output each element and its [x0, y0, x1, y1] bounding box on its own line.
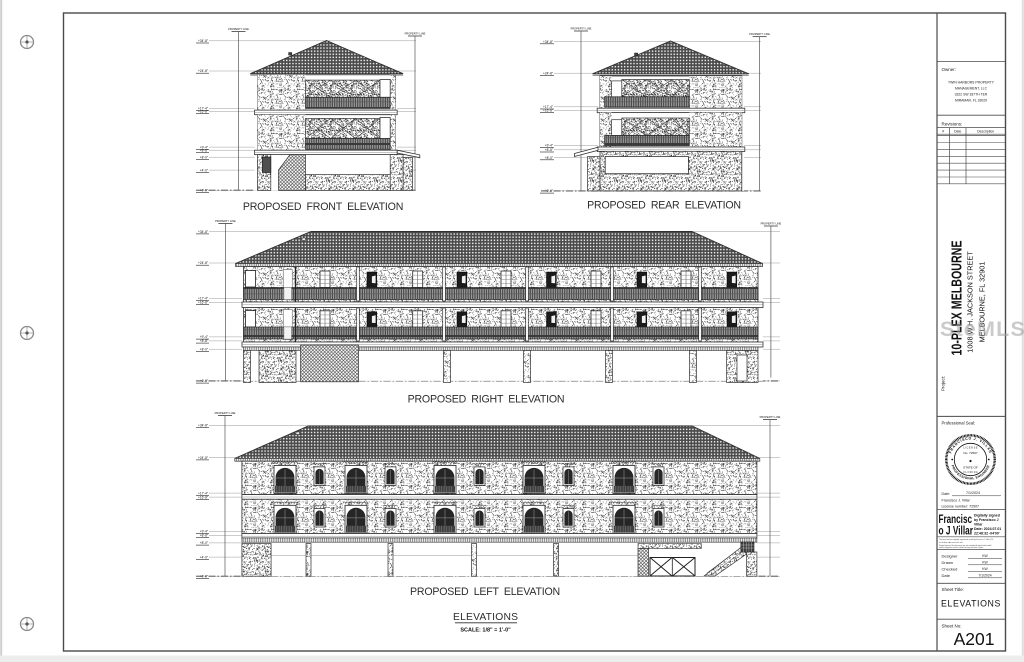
svg-text:Revisions:: Revisions: — [942, 121, 963, 126]
svg-text:PROPOSED LEFT ELEVATION: PROPOSED LEFT ELEVATION — [410, 586, 560, 598]
svg-text:+8'-8": +8'-8" — [200, 339, 208, 343]
svg-text:PROPOSED RIGHT ELEVATION: PROPOSED RIGHT ELEVATION — [408, 394, 565, 406]
svg-text:and the signature must be veri: and the signature must be verified on an… — [939, 546, 984, 549]
svg-text:Owner:: Owner: — [942, 67, 957, 72]
svg-text:KW: KW — [982, 554, 988, 558]
svg-text:+34'-8": +34'-8" — [198, 39, 208, 43]
svg-text:SCALE: 1/8" = 1'-0": SCALE: 1/8" = 1'-0" — [460, 628, 511, 634]
svg-text:L I C E N S E: L I C E N S E — [963, 447, 978, 450]
svg-text:on the date adjacent to the se: on the date adjacent to the seal. — [939, 541, 964, 544]
svg-text:Description: Description — [977, 130, 994, 134]
svg-text:3322 SW 187TH TER: 3322 SW 187TH TER — [955, 93, 988, 97]
svg-text:+24'-8": +24'-8" — [198, 456, 208, 460]
svg-text:Francisco J. Villar: Francisco J. Villar — [942, 499, 971, 503]
svg-text:7/1/2024: 7/1/2024 — [978, 574, 991, 578]
svg-text:+8'-0": +8'-0" — [200, 347, 208, 351]
svg-text:7/1/2024: 7/1/2024 — [966, 491, 980, 495]
svg-text:F L O R I D A: F L O R I D A — [963, 471, 978, 474]
svg-text:Sheet Title:: Sheet Title: — [942, 587, 965, 592]
svg-text:+16'-8": +16'-8" — [198, 301, 208, 305]
svg-text:PROPOSED FRONT ELEVATION: PROPOSED FRONT ELEVATION — [243, 201, 403, 213]
svg-text:22:48:32 -04'00': 22:48:32 -04'00' — [974, 532, 1000, 536]
svg-text:This item has been digitally s: This item has been digitally signed and … — [939, 538, 994, 541]
svg-text:Project:: Project: — [941, 376, 946, 391]
svg-text:+24'-8": +24'-8" — [198, 69, 208, 73]
svg-text:A201: A201 — [954, 629, 995, 649]
svg-text:PROPERTY LINE: PROPERTY LINE — [760, 415, 781, 419]
svg-text:Sheet No:: Sheet No: — [942, 624, 962, 629]
svg-text:License number: 72507: License number: 72507 — [942, 504, 980, 508]
svg-text:KW: KW — [982, 561, 988, 565]
svg-text:PROPERTY LINE: PROPERTY LINE — [215, 411, 236, 415]
svg-text:+34'-8": +34'-8" — [198, 424, 208, 428]
svg-text:Villar: Villar — [974, 523, 983, 527]
svg-text:+16'-8": +16'-8" — [198, 110, 208, 114]
svg-text:Digitally signed: Digitally signed — [974, 514, 1000, 518]
svg-text:+34'-8": +34'-8" — [543, 40, 553, 44]
svg-text:+8'-0": +8'-0" — [545, 156, 553, 160]
svg-text:+16'-8": +16'-8" — [543, 109, 553, 113]
svg-text:PROPERTY LINE: PROPERTY LINE — [405, 32, 426, 36]
svg-text:PROPERTY LINE: PROPERTY LINE — [571, 27, 592, 31]
svg-text:+24'-8": +24'-8" — [198, 261, 208, 265]
svg-text:STATE OF: STATE OF — [963, 466, 978, 470]
svg-text:PROPERTY LINE: PROPERTY LINE — [761, 222, 782, 226]
svg-text:ELEVATIONS: ELEVATIONS — [941, 599, 1001, 609]
svg-text:#: # — [942, 130, 944, 134]
svg-text:Date:: Date: — [942, 492, 951, 496]
svg-text:Designer: Designer — [942, 554, 959, 559]
svg-text:PROPERTY LINE: PROPERTY LINE — [215, 219, 236, 223]
svg-text:Checked: Checked — [942, 567, 958, 572]
svg-text:Drawn: Drawn — [942, 560, 954, 565]
svg-text:SteMLS: SteMLS — [940, 317, 1024, 341]
svg-text:+24'-8": +24'-8" — [543, 71, 553, 75]
svg-text:by Francisco J: by Francisco J — [974, 518, 999, 522]
svg-text:TWIN HARBORS PROPERTY: TWIN HARBORS PROPERTY — [948, 81, 995, 85]
svg-text:+16'-8": +16'-8" — [198, 495, 208, 499]
svg-text:+8'-8": +8'-8" — [545, 148, 553, 152]
svg-text:+8'-8": +8'-8" — [200, 534, 208, 538]
svg-text:MIRAMAR, FL 33029: MIRAMAR, FL 33029 — [955, 99, 987, 103]
svg-text:No. 72507: No. 72507 — [963, 451, 978, 455]
svg-text:Professional Seal:: Professional Seal: — [942, 420, 976, 425]
svg-text:PROPERTY LINE: PROPERTY LINE — [749, 32, 770, 36]
svg-text:+8'-0": +8'-0" — [200, 155, 208, 159]
svg-text:+8'-0": +8'-0" — [200, 541, 208, 545]
svg-text:Date: Date — [954, 130, 961, 134]
svg-text:o J Villar: o J Villar — [939, 524, 974, 538]
svg-text:Date: Date — [942, 573, 951, 578]
svg-text:PROPOSED REAR ELEVATION: PROPOSED REAR ELEVATION — [587, 200, 741, 212]
svg-text:+34'-8": +34'-8" — [198, 230, 208, 234]
svg-text:Date: 2024.07.01: Date: 2024.07.01 — [974, 527, 1001, 531]
svg-text:+4'-0": +4'-0" — [200, 555, 208, 559]
svg-text:+4'-0": +4'-0" — [200, 168, 208, 172]
svg-text:+8'-8": +8'-8" — [200, 148, 208, 152]
svg-text:KW: KW — [982, 567, 988, 571]
svg-text:ELEVATIONS: ELEVATIONS — [453, 612, 518, 623]
svg-text:PROPERTY LINE: PROPERTY LINE — [228, 27, 249, 31]
svg-text:MANAGEMENT, LLC: MANAGEMENT, LLC — [955, 87, 988, 91]
